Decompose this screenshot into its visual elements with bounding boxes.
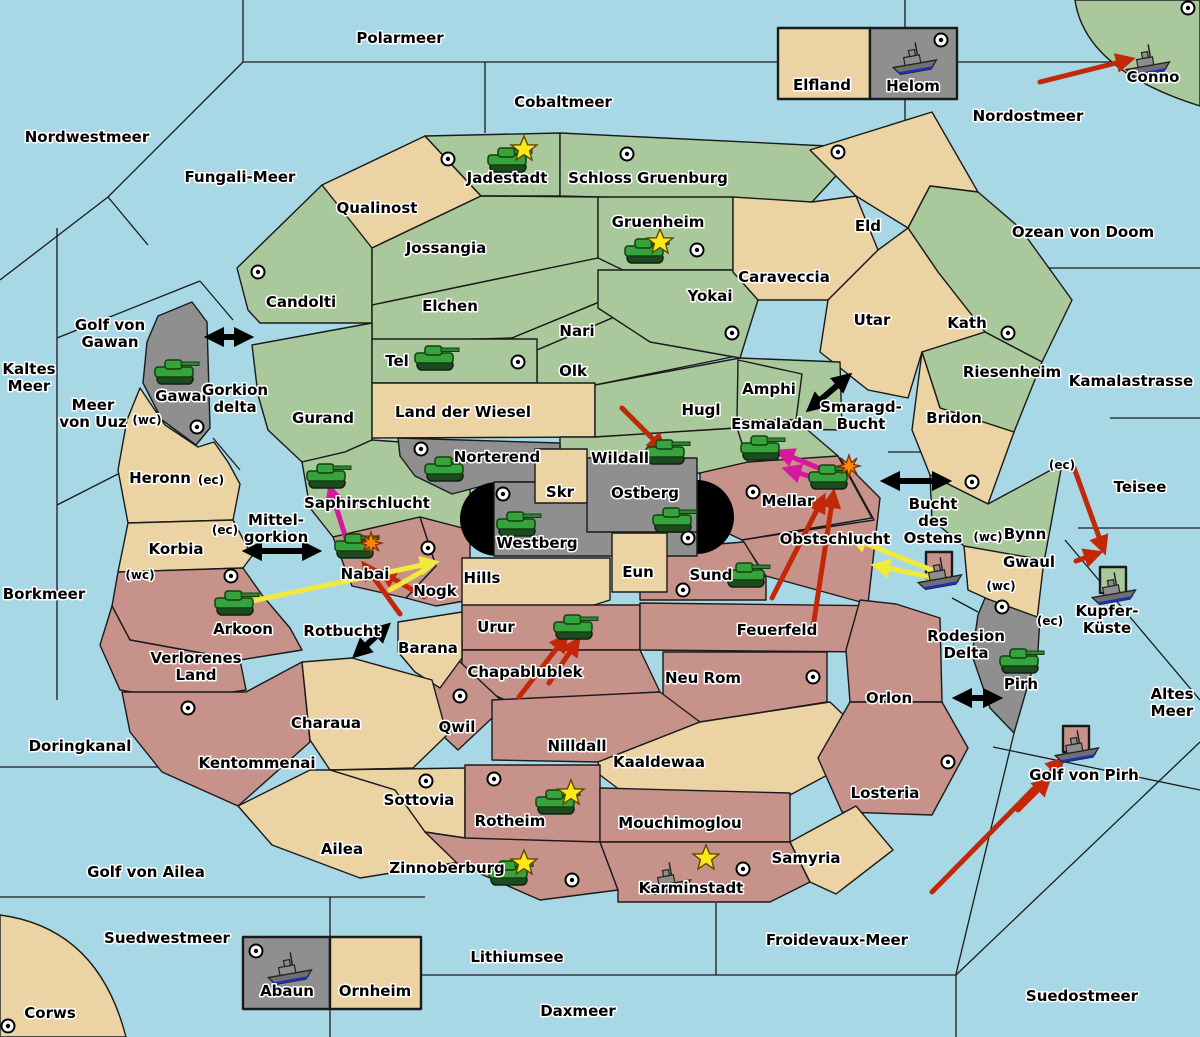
label-skr: Skr: [546, 483, 575, 501]
label-westberg: Westberg: [496, 534, 577, 552]
sea-label-meer_von_uuz: von Uuz: [59, 413, 127, 431]
label-jossangia: Jossangia: [405, 239, 487, 257]
sea-label-kaltes_meer: Kaltes: [2, 360, 55, 378]
sea-label-suedwestmeer: Suedwestmeer: [104, 929, 230, 947]
supply-dot-gruenheim: [691, 244, 704, 257]
label-kaaldewaa: Kaaldewaa: [613, 753, 705, 771]
game-map-stage: JadestadtSchloss GruenburgGruenheimQuali…: [0, 0, 1200, 1037]
label-sund: Sund: [690, 566, 733, 584]
coast-token: (ec): [212, 523, 238, 537]
sea-label-rodesion_delta: Delta: [943, 644, 988, 662]
supply-dot-tel: [512, 356, 525, 369]
label-ostberg: Ostberg: [611, 484, 679, 502]
label-tel: Tel: [385, 352, 409, 370]
sea-label-doringkanal: Doringkanal: [29, 737, 132, 755]
sea-label-golf_von_pirh: Golf von Pirh: [1029, 766, 1139, 784]
coast-token: (wc): [986, 579, 1015, 593]
territory-rotheim[interactable]: [465, 765, 600, 842]
label-gwaul: Gwaul: [1003, 553, 1055, 571]
coast-token: (ec): [1037, 614, 1063, 628]
label-candolti: Candolti: [266, 293, 336, 311]
label-kath: Kath: [947, 314, 987, 332]
label-orlon: Orlon: [866, 689, 912, 707]
label-jadestadt: Jadestadt: [466, 169, 548, 187]
coast-token: (wc): [973, 530, 1002, 544]
sea-label-golf_von_gawan: Gawan: [81, 333, 138, 351]
label-yokai: Yokai: [686, 287, 732, 305]
supply-dot-eld: [832, 146, 845, 159]
sea-label-nordwestmeer: Nordwestmeer: [25, 128, 150, 146]
label-qwil: Qwil: [439, 718, 476, 736]
supply-dot-candolti: [252, 266, 265, 279]
label-arkoon: Arkoon: [213, 620, 273, 638]
label-rotheim: Rotheim: [475, 812, 546, 830]
sea-label-mittel_gorkion: gorkion: [244, 528, 309, 546]
sea-label-kamalastrasse: Kamalastrasse: [1069, 372, 1193, 390]
label-helom: Helom: [886, 77, 940, 95]
supply-dot-karminstadt: [737, 863, 750, 876]
label-losteria: Losteria: [851, 784, 920, 802]
label-wildall: Wildall: [591, 449, 649, 467]
sea-label-smaragd_bucht: Bucht: [837, 415, 886, 433]
sea-label-meer_von_uuz: Meer: [72, 396, 115, 414]
label-sottovia: Sottovia: [384, 791, 455, 809]
supply-dot-conno: [1182, 2, 1195, 15]
sea-label-polarmeer: Polarmeer: [356, 29, 444, 47]
label-corws: Corws: [24, 1004, 76, 1022]
label-elchen: Elchen: [422, 297, 478, 315]
label-gurand: Gurand: [292, 409, 354, 427]
label-abaun: Abaun: [260, 982, 314, 1000]
burst-mark-nabai: [360, 532, 382, 554]
sea-label-gorkion_delta: delta: [213, 398, 256, 416]
supply-dot-losteria: [942, 756, 955, 769]
label-barana: Barana: [398, 639, 458, 657]
label-bridon: Bridon: [926, 409, 982, 427]
label-zinnoberburg: Zinnoberburg: [389, 859, 505, 877]
supply-dot-jadestadt: [442, 153, 455, 166]
sea-label-rodesion_delta: Rodesion: [927, 627, 1005, 645]
label-schloss_gruenburg: Schloss Gruenburg: [568, 169, 728, 187]
label-qualinost: Qualinost: [337, 199, 418, 217]
supply-dot-zinnoberburg: [566, 874, 579, 887]
sea-label-bucht_des_ostens: Ostens: [904, 529, 963, 547]
sea-label-bucht_des_ostens: Bucht: [909, 495, 958, 513]
label-nabai: Nabai: [341, 565, 390, 583]
supply-dot-nogk: [422, 542, 435, 555]
label-conno: Conno: [1127, 68, 1180, 86]
label-saphirschlucht: Saphirschlucht: [304, 494, 430, 512]
label-hills: Hills: [464, 569, 501, 587]
label-chapablublek: Chapablublek: [467, 663, 583, 681]
sea-label-mittel_gorkion: Mittel-: [248, 511, 304, 529]
label-norterend: Norterend: [454, 448, 541, 466]
supply-dot-ostberg: [682, 532, 695, 545]
label-mouchimoglou: Mouchimoglou: [618, 814, 741, 832]
label-eld: Eld: [855, 217, 881, 235]
sea-label-kupfer_kueste: Küste: [1083, 619, 1131, 637]
label-obstschlucht: Obstschlucht: [780, 530, 891, 548]
label-mellar: Mellar: [762, 492, 816, 510]
label-urur: Urur: [477, 618, 515, 636]
label-feuerfeld: Feuerfeld: [737, 621, 818, 639]
label-ailea: Ailea: [321, 840, 363, 858]
sea-label-kaltes_meer: Meer: [8, 377, 51, 395]
supply-dot-schloss_gruenburg: [621, 148, 634, 161]
label-verlorenes_land: Verlorenes: [150, 649, 241, 667]
sea-label-suedostmeer: Suedostmeer: [1026, 987, 1139, 1005]
label-elfland: Elfland: [793, 76, 851, 94]
label-samyria: Samyria: [772, 849, 841, 867]
sea-label-altes_meer: Meer: [1151, 702, 1194, 720]
supply-dot-westberg: [497, 488, 510, 501]
sea-label-fungali_meer: Fungali-Meer: [185, 168, 296, 186]
sea-label-kupfer_kueste: Kupfer-: [1075, 602, 1138, 620]
supply-dot-sottovia: [420, 775, 433, 788]
label-nogk: Nogk: [413, 582, 458, 600]
coast-token: (ec): [198, 473, 224, 487]
supply-dot-abaun: [250, 945, 263, 958]
sea-label-teisee: Teisee: [1114, 478, 1167, 496]
sea-label-cobaltmeer: Cobaltmeer: [514, 93, 612, 111]
supply-dot-corws: [2, 1020, 15, 1033]
label-nari: Nari: [559, 322, 594, 340]
supply-dot-norterend: [415, 443, 428, 456]
supply-dot-kath: [1002, 327, 1015, 340]
sea-label-bucht_des_ostens: des: [918, 512, 948, 530]
label-caraveccia: Caraveccia: [738, 268, 830, 286]
label-riesenheim: Riesenheim: [963, 363, 1061, 381]
coast-token: (wc): [132, 413, 161, 427]
label-charaua: Charaua: [291, 714, 361, 732]
sea-label-golf_von_gawan: Golf von: [75, 316, 145, 334]
territory-gruenheim[interactable]: [598, 197, 733, 270]
sea-label-gorkion_delta: Gorkion: [202, 381, 268, 399]
supply-dot-gawar: [191, 421, 204, 434]
coast-token: (wc): [125, 568, 154, 582]
game-map: JadestadtSchloss GruenburgGruenheimQuali…: [0, 0, 1200, 1037]
sea-label-froidevaux_meer: Froidevaux-Meer: [766, 931, 909, 949]
label-nilldall: Nilldall: [547, 737, 606, 755]
label-eun: Eun: [622, 563, 654, 581]
sea-label-altes_meer: Altes: [1150, 685, 1193, 703]
label-heronn: Heronn: [129, 469, 191, 487]
label-gruenheim: Gruenheim: [612, 213, 705, 231]
sea-label-lithiumsee: Lithiumsee: [470, 948, 563, 966]
supply-dot-qwil: [454, 690, 467, 703]
label-hugl: Hugl: [681, 401, 720, 419]
sea-label-nordostmeer: Nordostmeer: [973, 107, 1084, 125]
sea-label-smaragd_bucht: Smaragd-: [820, 398, 902, 416]
supply-dot-helom: [935, 34, 948, 47]
label-amphi: Amphi: [742, 380, 796, 398]
supply-dot-arkoon: [225, 570, 238, 583]
supply-dot-yokai: [726, 327, 739, 340]
label-karminstadt: Karminstadt: [639, 879, 744, 897]
supply-dot-rotheim: [488, 773, 501, 786]
label-esmaladan: Esmaladan: [731, 415, 823, 433]
label-ornheim: Ornheim: [339, 982, 411, 1000]
supply-dot-bridon: [966, 476, 979, 489]
sea-label-borkmeer: Borkmeer: [3, 585, 86, 603]
coast-token: (ec): [1049, 458, 1075, 472]
label-olk: Olk: [559, 362, 588, 380]
label-kentommenai: Kentommenai: [198, 754, 315, 772]
sea-label-ozean_von_doom: Ozean von Doom: [1012, 223, 1154, 241]
sea-label-daxmeer: Daxmeer: [540, 1002, 616, 1020]
supply-dot-pirh: [996, 601, 1009, 614]
label-land_der_wiesel: Land der Wiesel: [395, 403, 531, 421]
label-bynn: Bynn: [1004, 525, 1047, 543]
supply-dot-sund: [677, 584, 690, 597]
supply-dot-mellar: [747, 486, 760, 499]
territory-orlon[interactable]: [846, 600, 942, 702]
label-pirh: Pirh: [1004, 675, 1038, 693]
label-verlorenes_land: Land: [175, 666, 216, 684]
label-korbia: Korbia: [148, 540, 203, 558]
burst-mark-obstschlucht: [838, 455, 860, 477]
supply-dot-kentommenai: [182, 702, 195, 715]
label-utar: Utar: [854, 311, 891, 329]
sea-label-golf_von_ailea: Golf von Ailea: [87, 863, 205, 881]
sea-label-rotbucht: Rotbucht: [303, 622, 380, 640]
label-neu_rom: Neu Rom: [665, 669, 741, 687]
supply-dot-neu_rom: [807, 671, 820, 684]
